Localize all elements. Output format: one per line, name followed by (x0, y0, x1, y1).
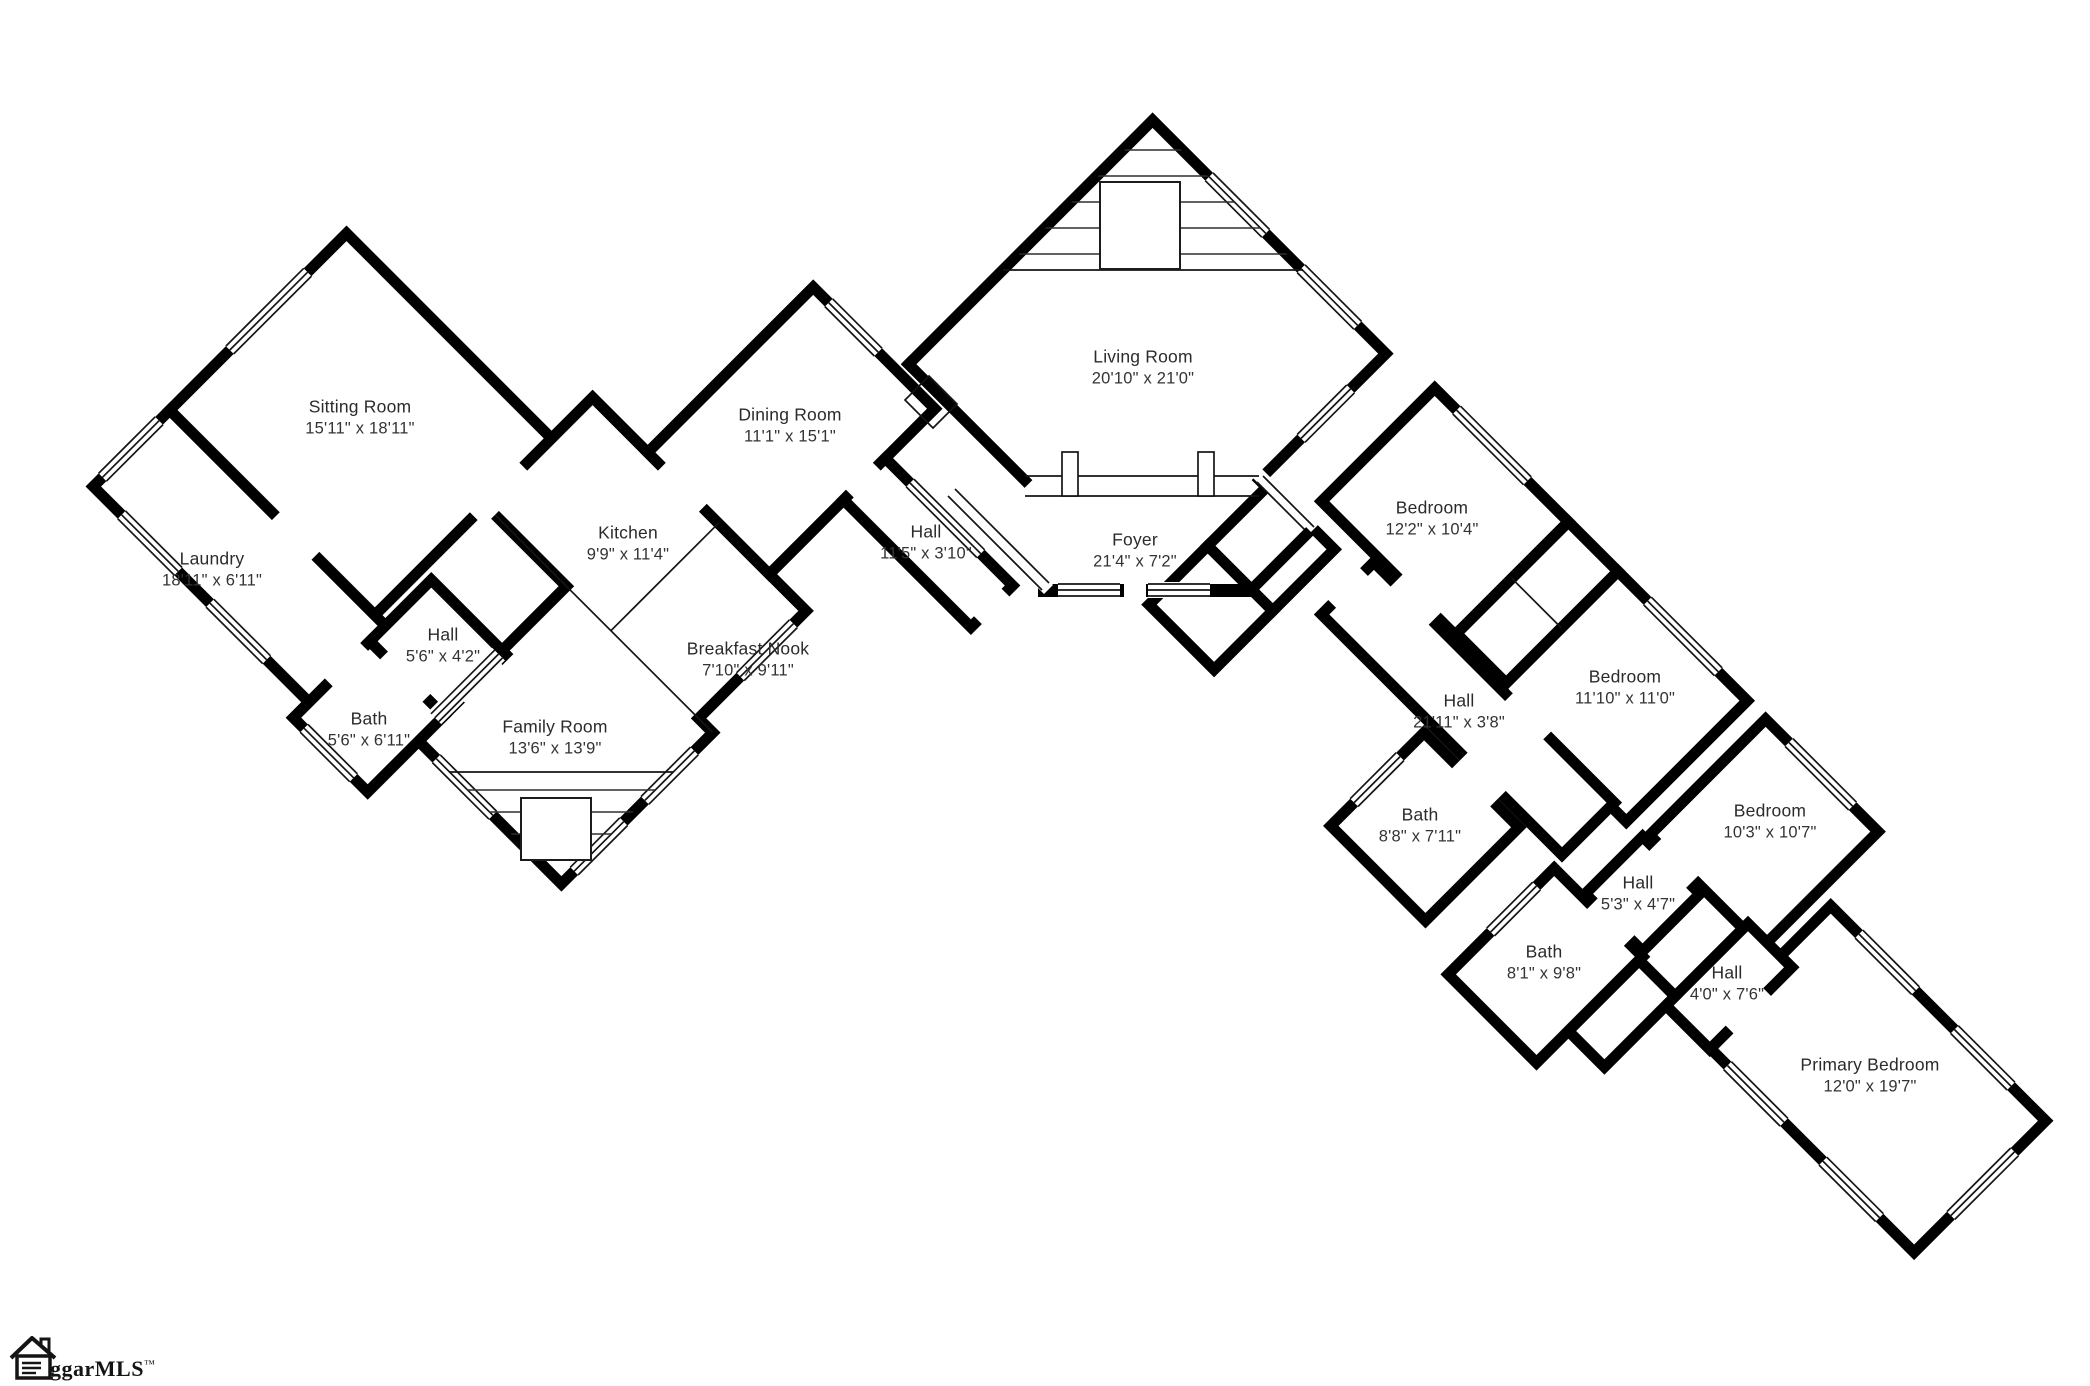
room-name: Bath (1379, 804, 1462, 827)
room-label-bath-l: Bath5'6" x 6'11" (328, 708, 411, 753)
room-dimensions: 8'1" x 9'8" (1507, 964, 1581, 986)
room-name: Hall (880, 521, 972, 544)
room-dimensions: 9'9" x 11'4" (587, 545, 670, 567)
room-name: Laundry (162, 548, 262, 571)
room-label-bed3: Bedroom10'3" x 10'7" (1723, 800, 1816, 845)
room-dimensions: 11'5" x 3'10" (880, 544, 972, 566)
room-dimensions: 15'11" x 18'11" (305, 419, 414, 441)
room-name: Bedroom (1723, 800, 1816, 823)
room-name: Bath (1507, 941, 1581, 964)
room-dimensions: 21'4" x 7'2" (1093, 552, 1177, 574)
room-dimensions: 18'11" x 6'11" (162, 571, 262, 593)
room-label-bed2: Bedroom11'10" x 11'0" (1575, 666, 1675, 711)
room-name: Bedroom (1575, 666, 1675, 689)
room-name: Bedroom (1385, 497, 1478, 520)
room-name: Dining Room (738, 404, 841, 427)
room-name: Sitting Room (305, 396, 414, 419)
room-dimensions: 5'3" x 4'7" (1601, 895, 1675, 917)
room-name: Foyer (1093, 529, 1177, 552)
room-dimensions: 10'3" x 10'7" (1723, 823, 1816, 845)
room-label-living: Living Room20'10" x 21'0" (1092, 346, 1194, 391)
room-label-hall-40: Hall4'0" x 7'6" (1690, 962, 1764, 1007)
floor-plan: Sitting Room15'11" x 18'11"Laundry18'11"… (0, 0, 2090, 1386)
mls-logo: ggarMLS™ (8, 1334, 155, 1382)
room-label-sitting: Sitting Room15'11" x 18'11" (305, 396, 414, 441)
room-label-hall-r: Hall21'11" x 3'8" (1413, 690, 1505, 735)
room-dimensions: 8'8" x 7'11" (1379, 827, 1462, 849)
room-label-laundry: Laundry18'11" x 6'11" (162, 548, 262, 593)
room-name: Family Room (502, 716, 607, 739)
room-dimensions: 11'10" x 11'0" (1575, 689, 1675, 711)
room-name: Primary Bedroom (1800, 1054, 1939, 1077)
room-label-family: Family Room13'6" x 13'9" (502, 716, 607, 761)
room-label-dining: Dining Room11'1" x 15'1" (738, 404, 841, 449)
room-dimensions: 13'6" x 13'9" (502, 739, 607, 761)
mls-logo-text: ggarMLS™ (50, 1358, 155, 1380)
room-label-hall-115: Hall11'5" x 3'10" (880, 521, 972, 566)
floor-plan-drawing (0, 0, 2090, 1386)
room-dimensions: 12'2" x 10'4" (1385, 520, 1478, 542)
room-name: Breakfast Nook (687, 638, 809, 661)
room-label-kitchen: Kitchen9'9" x 11'4" (587, 522, 670, 567)
room-dimensions: 11'1" x 15'1" (738, 427, 841, 449)
room-name: Hall (406, 624, 480, 647)
room-dimensions: 4'0" x 7'6" (1690, 985, 1764, 1007)
room-dimensions: 7'10" x 9'11" (687, 661, 809, 683)
room-label-bed1: Bedroom12'2" x 10'4" (1385, 497, 1478, 542)
room-name: Kitchen (587, 522, 670, 545)
room-name: Hall (1690, 962, 1764, 985)
room-name: Hall (1413, 690, 1505, 713)
room-dimensions: 12'0" x 19'7" (1800, 1077, 1939, 1099)
room-label-bath-88: Bath8'8" x 7'11" (1379, 804, 1462, 849)
room-dimensions: 5'6" x 4'2" (406, 647, 480, 669)
room-dimensions: 5'6" x 6'11" (328, 731, 411, 753)
room-label-bath-81: Bath8'1" x 9'8" (1507, 941, 1581, 986)
room-dimensions: 21'11" x 3'8" (1413, 713, 1505, 735)
room-dimensions: 20'10" x 21'0" (1092, 369, 1194, 391)
room-label-primary: Primary Bedroom12'0" x 19'7" (1800, 1054, 1939, 1099)
room-label-foyer: Foyer21'4" x 7'2" (1093, 529, 1177, 574)
room-name: Bath (328, 708, 411, 731)
room-name: Hall (1601, 872, 1675, 895)
room-label-hall-l: Hall5'6" x 4'2" (406, 624, 480, 669)
room-name: Living Room (1092, 346, 1194, 369)
trademark-symbol: ™ (144, 1359, 155, 1371)
room-label-breakfast: Breakfast Nook7'10" x 9'11" (687, 638, 809, 683)
room-label-hall-53: Hall5'3" x 4'7" (1601, 872, 1675, 917)
